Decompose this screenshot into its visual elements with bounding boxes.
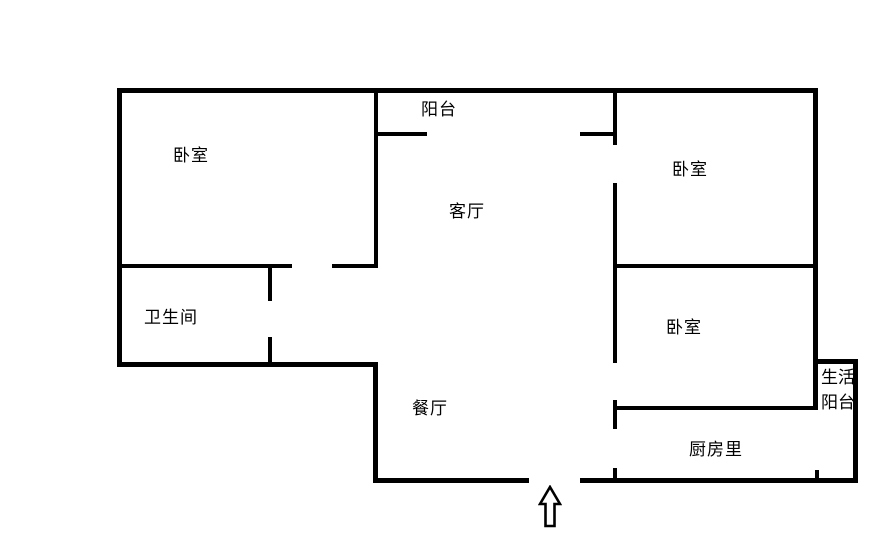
wall-central-vertical-seg2: [613, 183, 617, 363]
wall-bedroom-tl-right: [374, 88, 378, 268]
wall-balcony-bottom-left-seg: [377, 132, 427, 136]
room-label-bedroom-mid-right: 卧室: [666, 318, 702, 338]
room-label-bedroom-top-right: 卧室: [672, 160, 708, 180]
wall-central-vertical-seg4: [613, 468, 617, 483]
wall-balcony-bottom-right-seg: [580, 132, 617, 136]
wall-bathroom-right-lower: [268, 337, 272, 366]
wall-bedrooms-right-divider: [615, 264, 818, 268]
wall-bathroom-right-upper: [268, 264, 272, 301]
wall-central-vertical-seg1: [613, 88, 617, 145]
wall-outer-left: [117, 88, 122, 367]
entrance-up-arrow-icon: [538, 485, 562, 528]
wall-bottom-dining: [373, 478, 529, 483]
floorplan-canvas: 阳台 卧室 卧室 客厅 卫生间 卧室 生活 阳台 餐厅 厨房里: [0, 0, 891, 546]
room-label-utility-balcony-line1: 生活: [821, 366, 857, 391]
wall-kitchen-divider: [615, 406, 818, 410]
wall-bedroom-tl-bottom-left-seg: [117, 264, 292, 268]
wall-outer-bottom-left: [117, 362, 378, 367]
room-label-utility-balcony-line2: 阳台: [821, 391, 857, 416]
room-label-bathroom: 卫生间: [144, 308, 198, 328]
wall-outer-top: [117, 88, 818, 93]
wall-central-vertical-seg3: [613, 400, 617, 429]
wall-utility-balcony-stub: [815, 470, 819, 480]
room-label-living-room: 客厅: [449, 202, 485, 222]
wall-utility-balcony-top: [813, 359, 858, 364]
wall-bedroom-tl-bottom-right-seg: [332, 264, 378, 268]
wall-dining-left: [373, 362, 378, 483]
room-label-bedroom-top-left: 卧室: [173, 146, 209, 166]
room-label-utility-balcony: 生活 阳台: [821, 366, 857, 416]
room-label-dining-room: 餐厅: [412, 399, 448, 419]
room-label-balcony: 阳台: [421, 100, 457, 120]
room-label-kitchen: 厨房里: [689, 440, 743, 460]
